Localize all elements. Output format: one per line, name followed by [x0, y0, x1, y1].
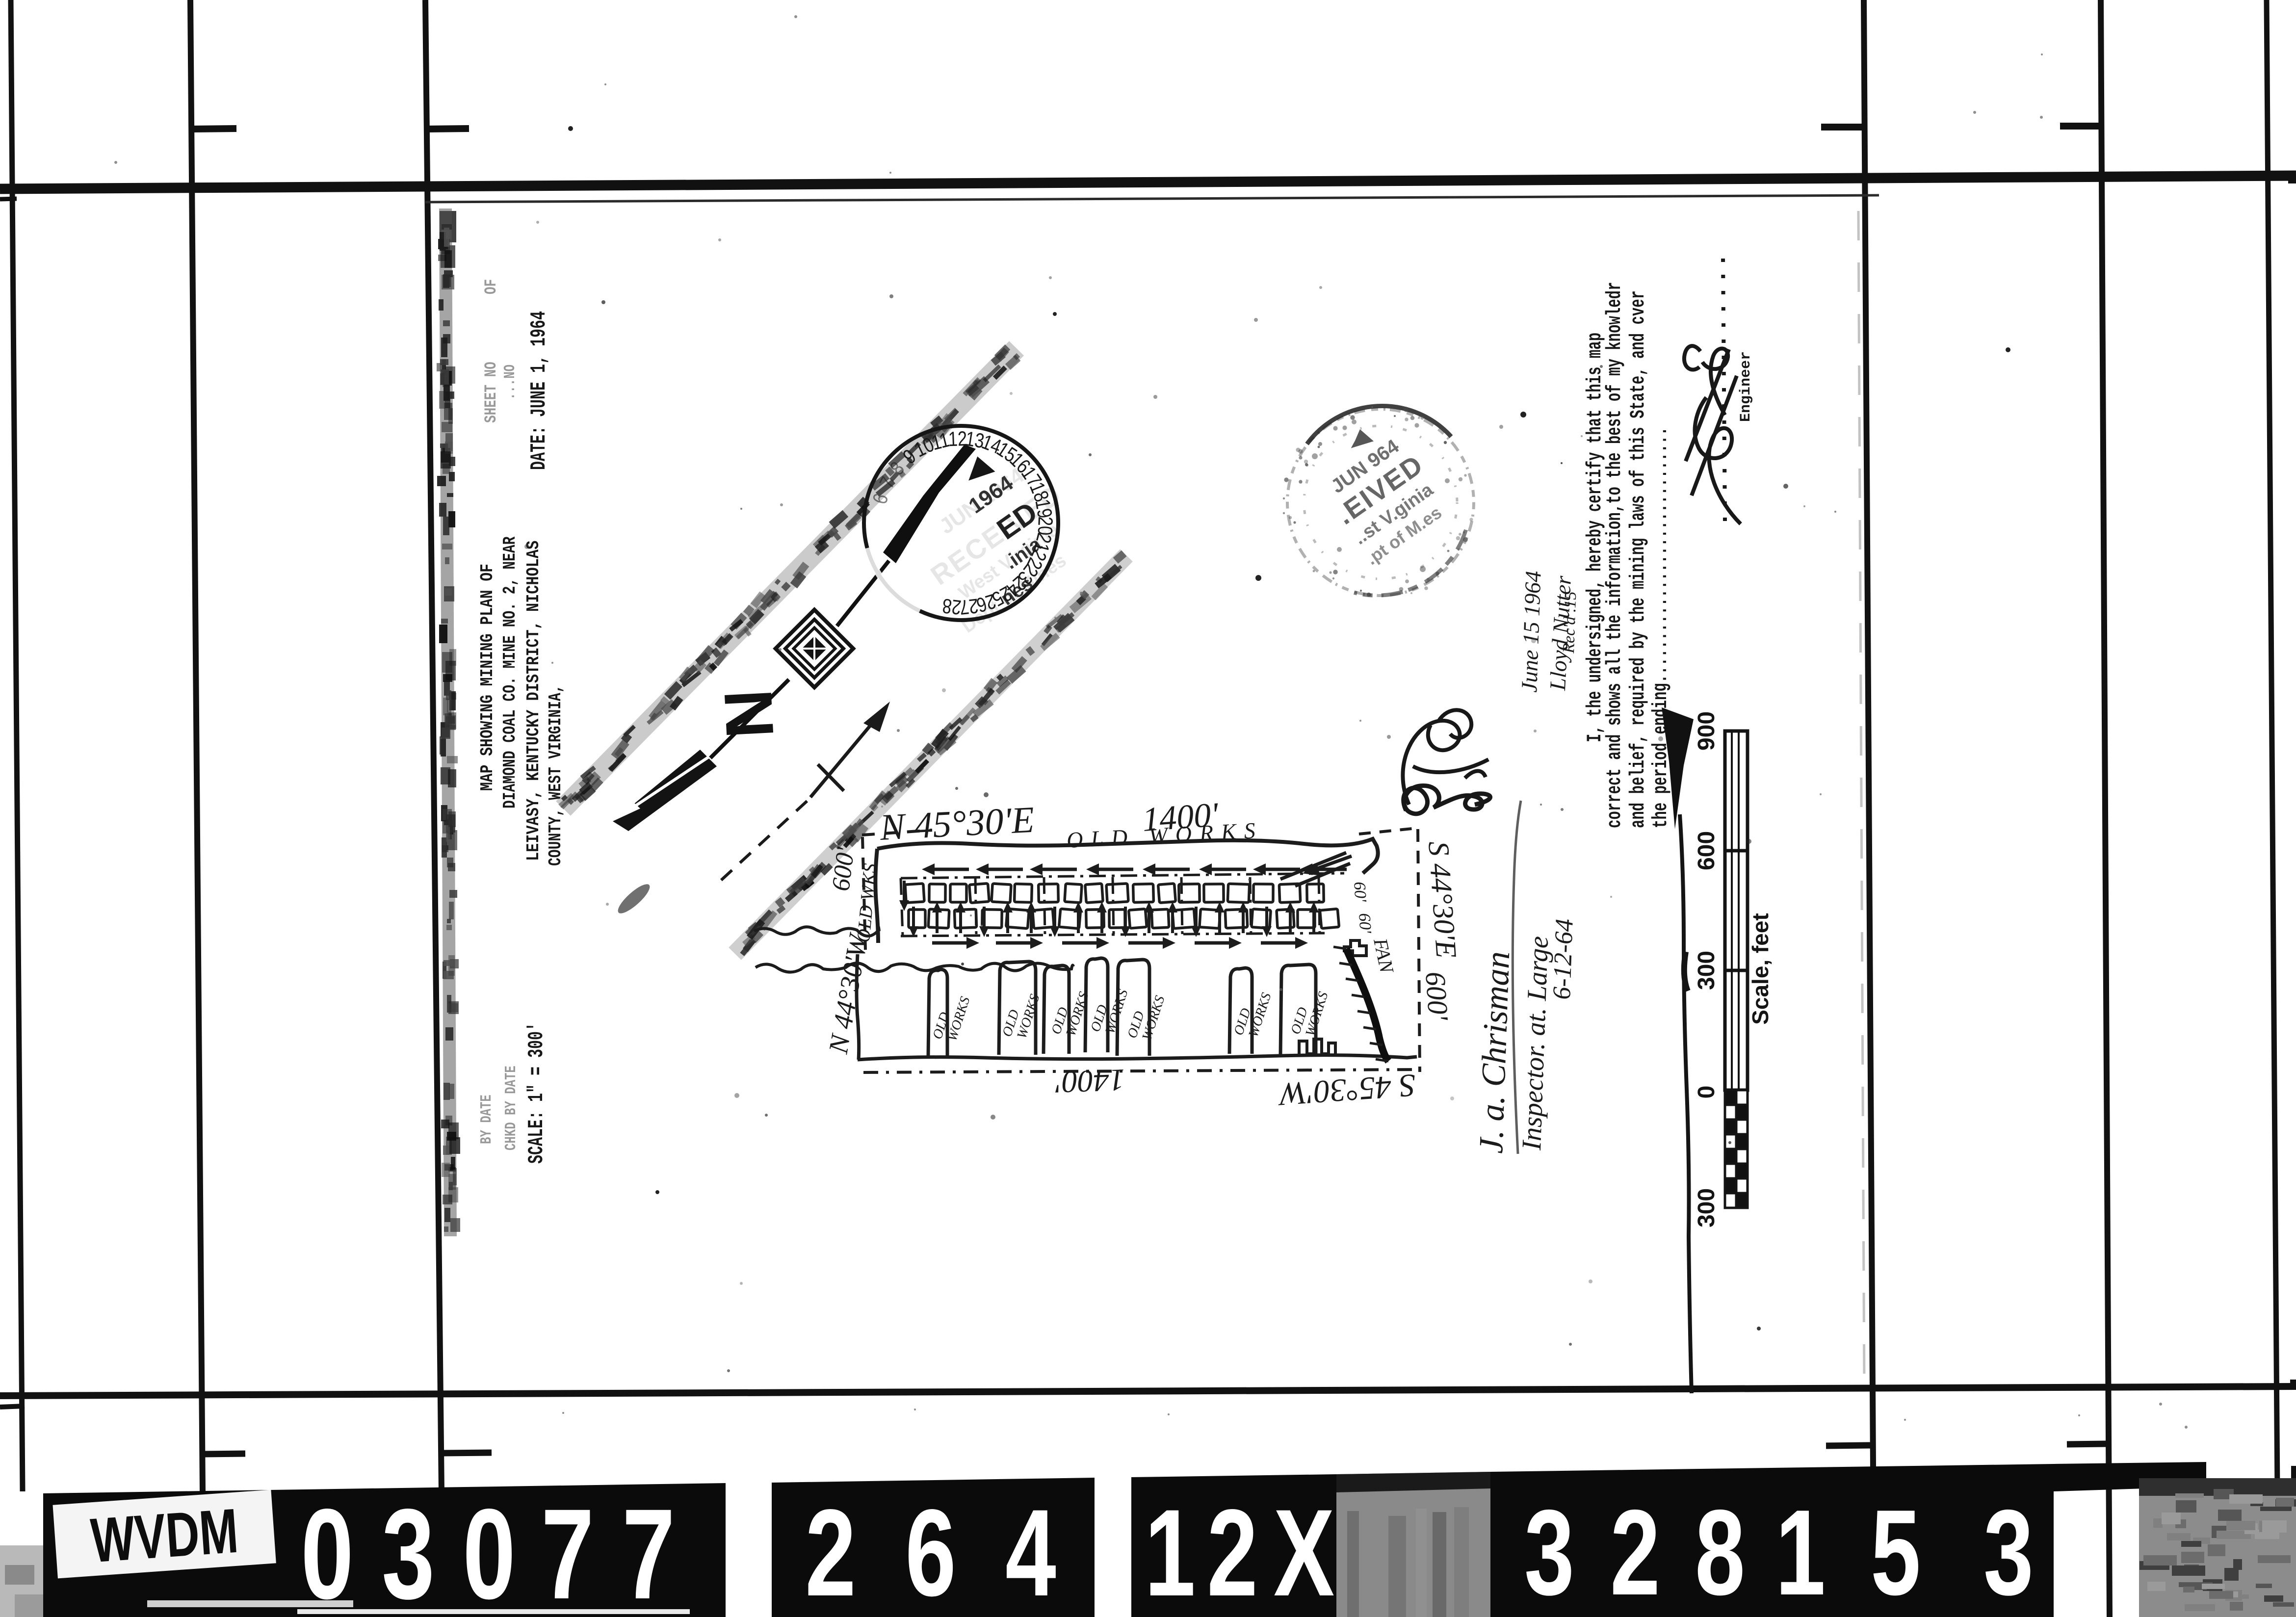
svg-text:6-12-64: 6-12-64 [1548, 918, 1579, 1000]
svg-text:60': 60' [1355, 913, 1375, 934]
svg-text:300: 300 [1694, 951, 1720, 990]
svg-text:7: 7 [622, 1482, 675, 1617]
svg-text:WVDM: WVDM [89, 1496, 240, 1576]
svg-text:FAN: FAN [1369, 936, 1398, 976]
svg-text:2: 2 [1207, 1484, 1258, 1617]
svg-text:SCALE: 1" = 300': SCALE: 1" = 300' [525, 1022, 549, 1164]
svg-text:1: 1 [1145, 1484, 1196, 1617]
svg-text:and belief, required by the mi: and belief, required by the mining laws … [1626, 290, 1650, 828]
svg-text:300: 300 [1694, 1188, 1720, 1227]
svg-text:N: N [710, 687, 788, 740]
svg-text:the period ending.............: the period ending.......................… [1649, 427, 1672, 828]
svg-text:June 15 1964: June 15 1964 [1516, 571, 1546, 693]
svg-text:SHEET NO: SHEET NO [482, 362, 501, 423]
svg-text:OF: OF [482, 279, 501, 294]
svg-text:DATE: JUNE 1, 1964: DATE: JUNE 1, 1964 [527, 311, 551, 470]
svg-text:DIAMOND COAL CO. MINE NO. 2, N: DIAMOND COAL CO. MINE NO. 2, NEAR [500, 536, 520, 808]
svg-text:0: 0 [463, 1482, 516, 1617]
svg-text:0: 0 [301, 1482, 354, 1617]
svg-text:S 45°30'W: S 45°30'W [1277, 1067, 1417, 1112]
svg-text:MAP SHOWING MINING PLAN OF: MAP SHOWING MINING PLAN OF [477, 564, 497, 791]
svg-text:900: 900 [1694, 711, 1720, 751]
svg-text:2: 2 [805, 1484, 856, 1617]
svg-text:...NO: ...NO [502, 365, 519, 400]
svg-text:1400': 1400' [1054, 1063, 1125, 1100]
svg-text:CHKD BY DATE: CHKD BY DATE [503, 1066, 520, 1150]
svg-text:Engineer: Engineer [1738, 351, 1754, 422]
svg-text:1: 1 [1775, 1485, 1826, 1617]
svg-text:6: 6 [905, 1484, 956, 1617]
svg-text:LEIVASY, KENTUCKY DISTRICT, NI: LEIVASY, KENTUCKY DISTRICT, NICHOLAS [524, 541, 544, 861]
svg-text:60': 60' [1350, 881, 1370, 903]
svg-text:3: 3 [382, 1482, 435, 1617]
svg-text:600': 600' [827, 845, 860, 892]
svg-text:BY DATE: BY DATE [478, 1095, 496, 1144]
svg-text:5: 5 [1871, 1485, 1921, 1617]
svg-text:COUNTY, WEST VIRGINIA,: COUNTY, WEST VIRGINIA, [546, 684, 566, 866]
svg-text:0: 0 [1694, 1086, 1720, 1099]
svg-text:N 45°30'E: N 45°30'E [878, 799, 1035, 848]
svg-text:J. a. Chrisman: J. a. Chrisman [1472, 951, 1517, 1154]
svg-text:Scale, feet: Scale, feet [1748, 913, 1773, 1025]
svg-text:28: 28 [941, 594, 963, 619]
svg-text:S 44°30'E: S 44°30'E [1422, 840, 1462, 959]
svg-text:OLD WORKS: OLD WORKS [1066, 817, 1264, 853]
svg-text:N 44°30'W: N 44°30'W [823, 931, 874, 1057]
svg-text:8: 8 [1695, 1485, 1745, 1617]
svg-text:4: 4 [1005, 1484, 1056, 1617]
svg-text:2: 2 [1610, 1485, 1660, 1617]
svg-text:X: X [1274, 1484, 1334, 1617]
svg-text:7: 7 [541, 1482, 594, 1617]
svg-text:Rec'd .15: Rec'd .15 [1560, 591, 1580, 654]
svg-text:correct and shows all the info: correct and shows all the information,to… [1603, 282, 1626, 828]
svg-text:600': 600' [1419, 970, 1455, 1022]
svg-text:3: 3 [1983, 1485, 2034, 1617]
svg-text:3: 3 [1524, 1485, 1574, 1617]
svg-text:600: 600 [1694, 831, 1720, 870]
